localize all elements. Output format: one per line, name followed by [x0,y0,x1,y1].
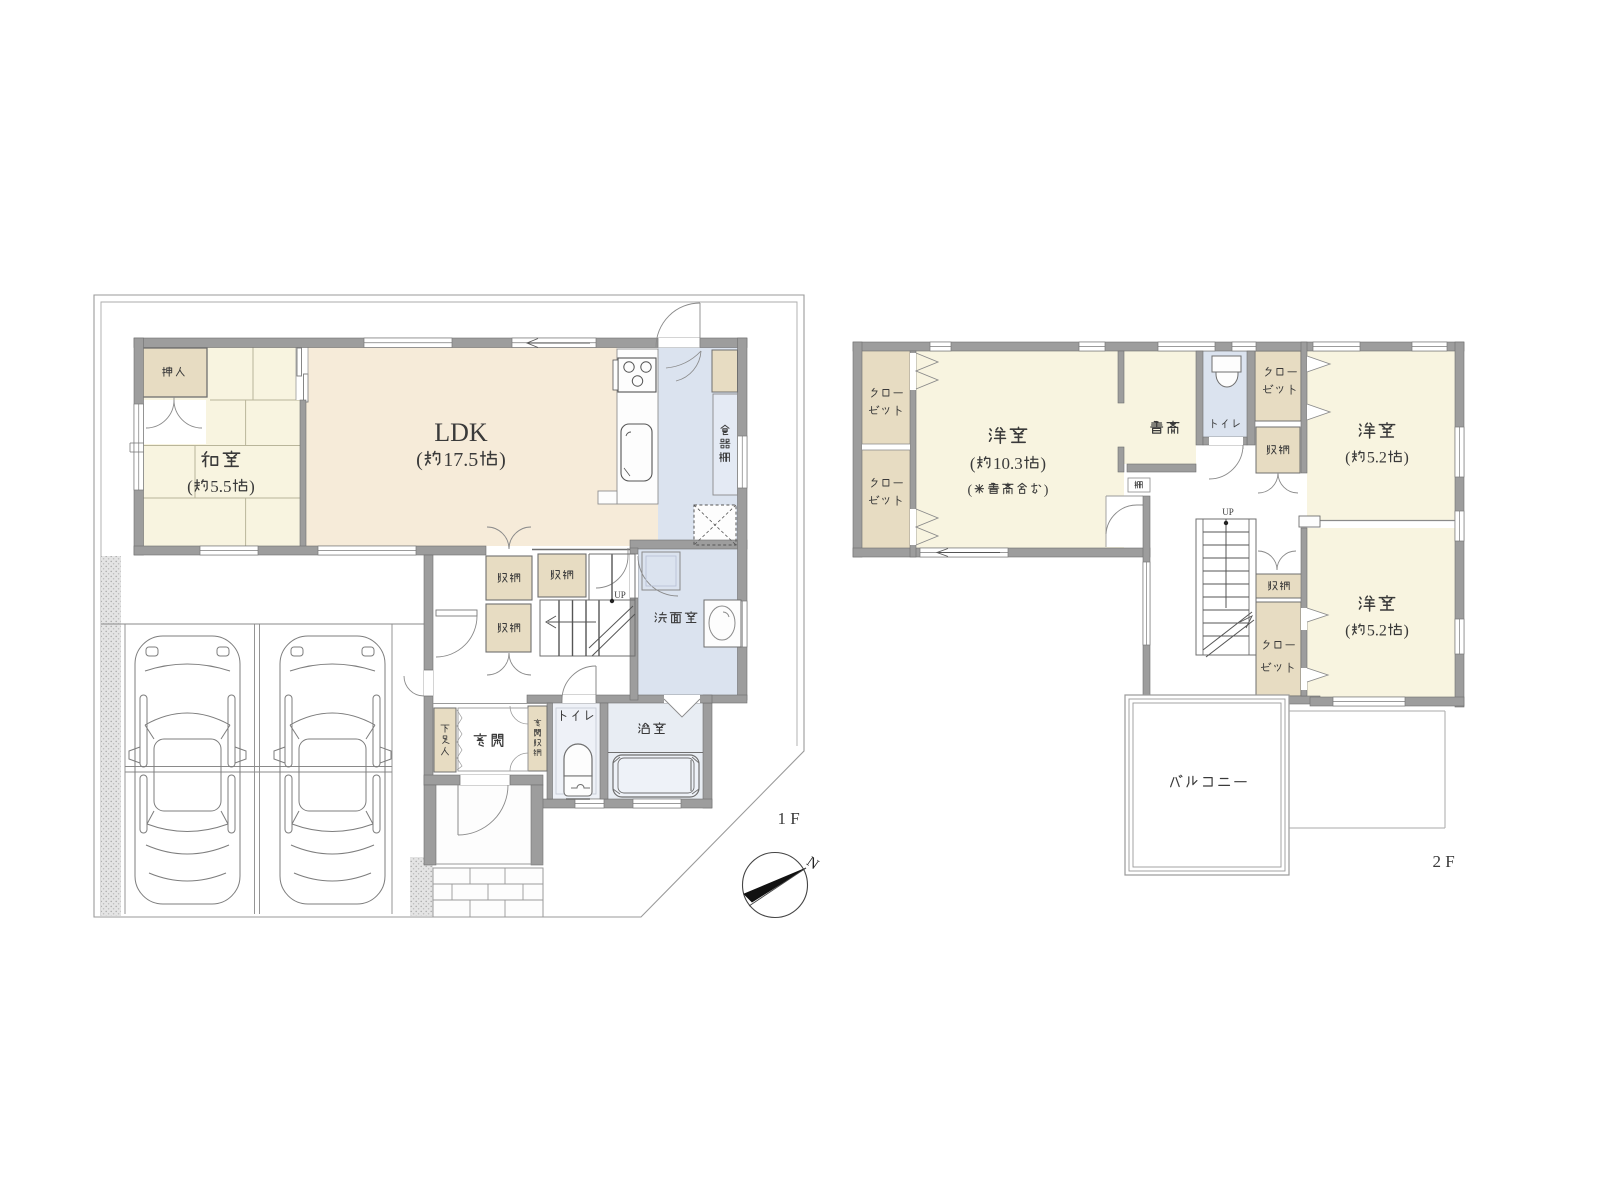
svg-text:(: ( [1345,622,1350,639]
svg-text:): ) [499,449,506,471]
svg-text:(: ( [970,454,976,473]
svg-text:5.2: 5.2 [1367,449,1387,466]
svg-text:17.5: 17.5 [443,449,478,471]
svg-text:): ) [249,477,255,496]
svg-text:): ) [1040,454,1046,473]
svg-text:(: ( [416,449,423,471]
svg-text:(: ( [187,477,193,496]
svg-text:LDK: LDK [434,418,488,447]
svg-text:2 F: 2 F [1432,852,1454,871]
svg-text:10.3: 10.3 [993,454,1023,473]
svg-text:UP: UP [1222,507,1234,517]
svg-text:): ) [1044,483,1049,498]
svg-text:5.5: 5.5 [210,477,231,496]
svg-text:1 F: 1 F [777,809,799,828]
svg-text:(: ( [1345,449,1350,466]
svg-text:(: ( [968,483,973,498]
svg-text:UP: UP [614,590,626,600]
svg-text:): ) [1403,449,1408,466]
svg-text:5.2: 5.2 [1367,622,1387,639]
svg-text:): ) [1403,622,1408,639]
